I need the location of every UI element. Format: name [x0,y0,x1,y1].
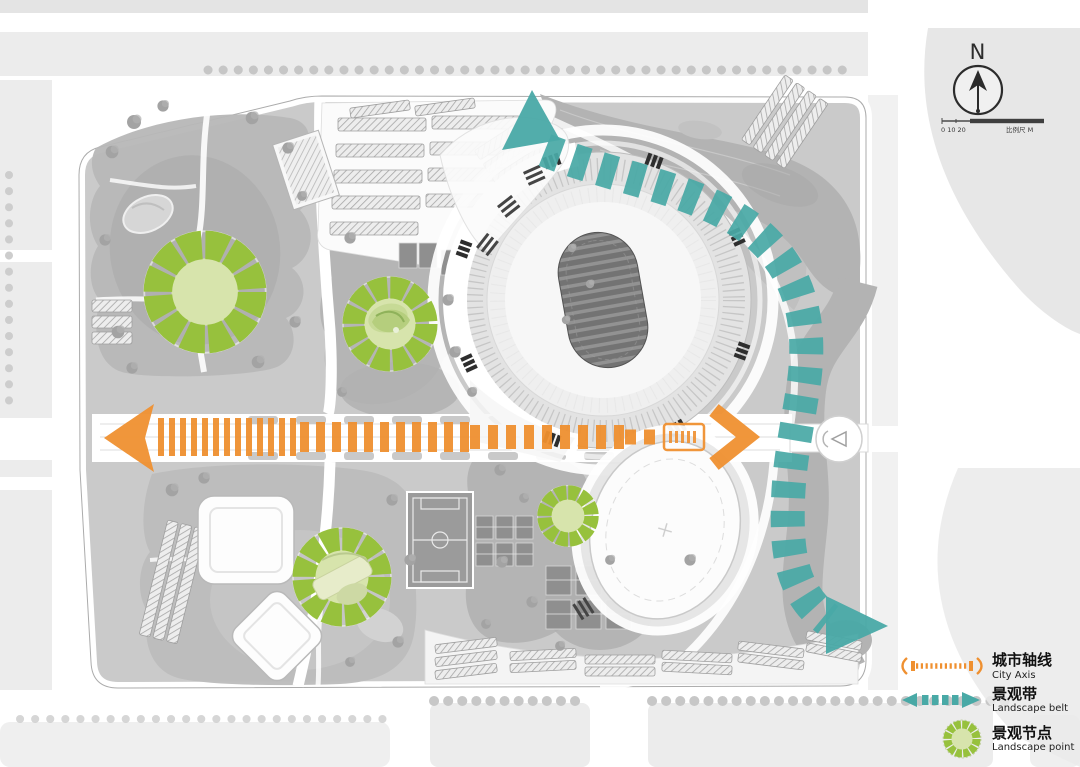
master-plan-page: N 0 10 20 比例尺 M 城市轴线 City Axis [0,0,1080,767]
legend-landscape-point-en: Landscape point [992,742,1074,753]
landscape-point-icon [942,719,982,759]
scale-ticks-label: 0 10 20 [941,126,966,134]
north-arrow-icon [950,62,1006,118]
scale-unit-label: 比例尺 M [1006,125,1033,134]
north-label: N [964,40,992,64]
legend-landscape-belt-zh: 景观带 [992,686,1068,703]
legend: 城市轴线 City Axis 景观带 Landscape belt [900,652,1080,764]
legend-landscape-belt-en: Landscape belt [992,703,1068,714]
parking-rows-west [92,300,132,344]
legend-city-axis-zh: 城市轴线 [992,652,1052,669]
soccer-field [407,492,473,588]
legend-city-axis-en: City Axis [992,670,1052,681]
landscape-belt-icon [900,690,984,710]
city-axis-icon [900,656,984,676]
legend-item-landscape-point: 景观节点 Landscape point [900,719,1080,759]
legend-item-landscape-belt: 景观带 Landscape belt [900,686,1080,715]
legend-item-city-axis: 城市轴线 City Axis [900,652,1080,681]
legend-landscape-point-zh: 景观节点 [992,725,1074,742]
scale-bar: 0 10 20 比例尺 M [938,116,1056,136]
